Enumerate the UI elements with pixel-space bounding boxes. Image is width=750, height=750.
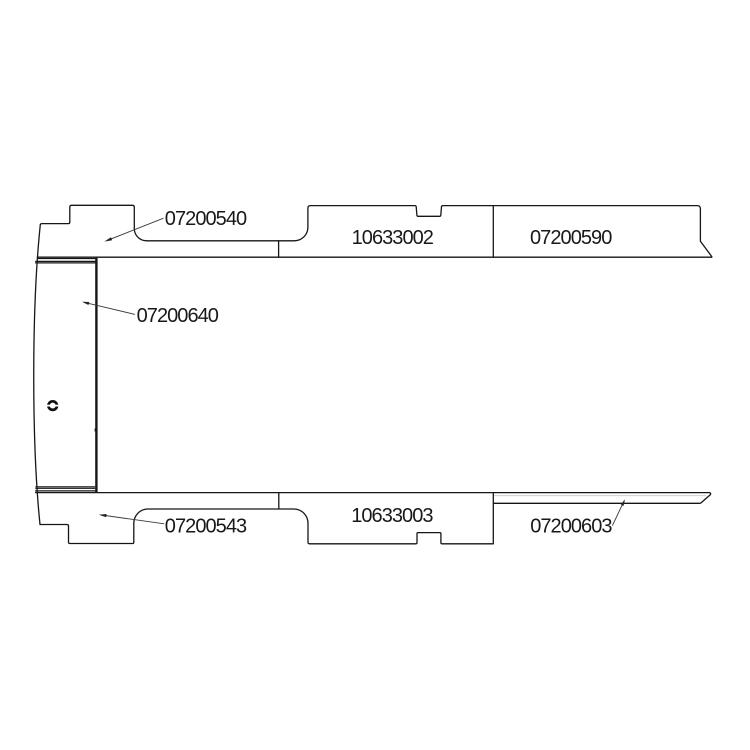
svg-text:10633003: 10633003	[351, 505, 433, 527]
svg-text:10633002: 10633002	[352, 227, 434, 249]
svg-text:07200590: 07200590	[530, 227, 612, 249]
svg-text:07200603: 07200603	[530, 515, 612, 537]
svg-text:07200540: 07200540	[165, 208, 247, 230]
svg-text:07200640: 07200640	[137, 305, 219, 327]
svg-text:07200543: 07200543	[165, 515, 247, 537]
